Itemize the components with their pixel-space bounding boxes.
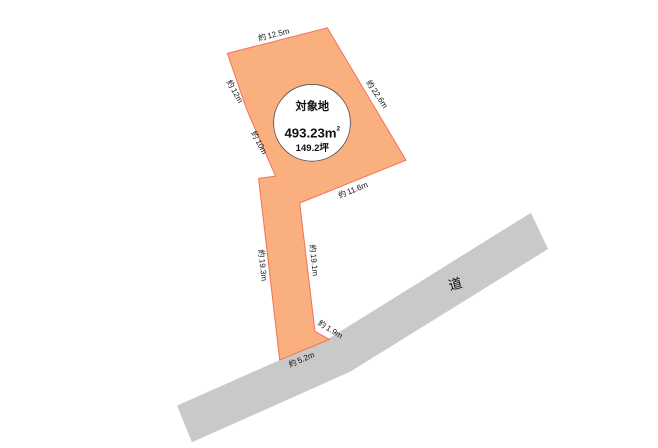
svg-text:対象地: 対象地	[295, 99, 330, 113]
svg-text:約19.1m: 約19.1m	[308, 244, 321, 277]
svg-text:149.2坪: 149.2坪	[296, 142, 330, 154]
svg-text:493.23m2: 493.23m2	[284, 125, 340, 140]
